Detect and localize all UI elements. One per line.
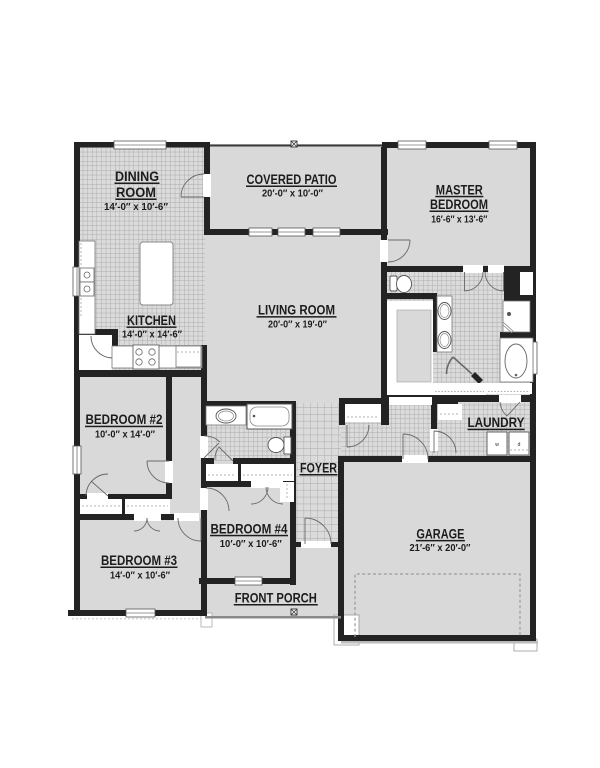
svg-text:21′-6″ x 20′-0″: 21′-6″ x 20′-0″ — [410, 543, 471, 554]
svg-text:20′-0″ x 10′-0″: 20′-0″ x 10′-0″ — [262, 189, 323, 200]
svg-text:10′-0″ x 14′-0″: 10′-0″ x 14′-0″ — [95, 430, 155, 441]
svg-text:w: w — [495, 442, 499, 448]
svg-text:20′-0″ x 19′-0″: 20′-0″ x 19′-0″ — [268, 319, 327, 330]
svg-text:d: d — [518, 442, 521, 448]
svg-text:14′-0″ x 14′-6″: 14′-0″ x 14′-6″ — [122, 330, 182, 341]
svg-text:16′-6″ x 13′-6″: 16′-6″ x 13′-6″ — [431, 214, 487, 225]
svg-text:14′-0″ x 10′-6″: 14′-0″ x 10′-6″ — [104, 202, 168, 213]
svg-text:14′-0″ x 10′-6″: 14′-0″ x 10′-6″ — [110, 570, 170, 581]
svg-text:10′-0″ x 10′-6″: 10′-0″ x 10′-6″ — [220, 539, 282, 550]
